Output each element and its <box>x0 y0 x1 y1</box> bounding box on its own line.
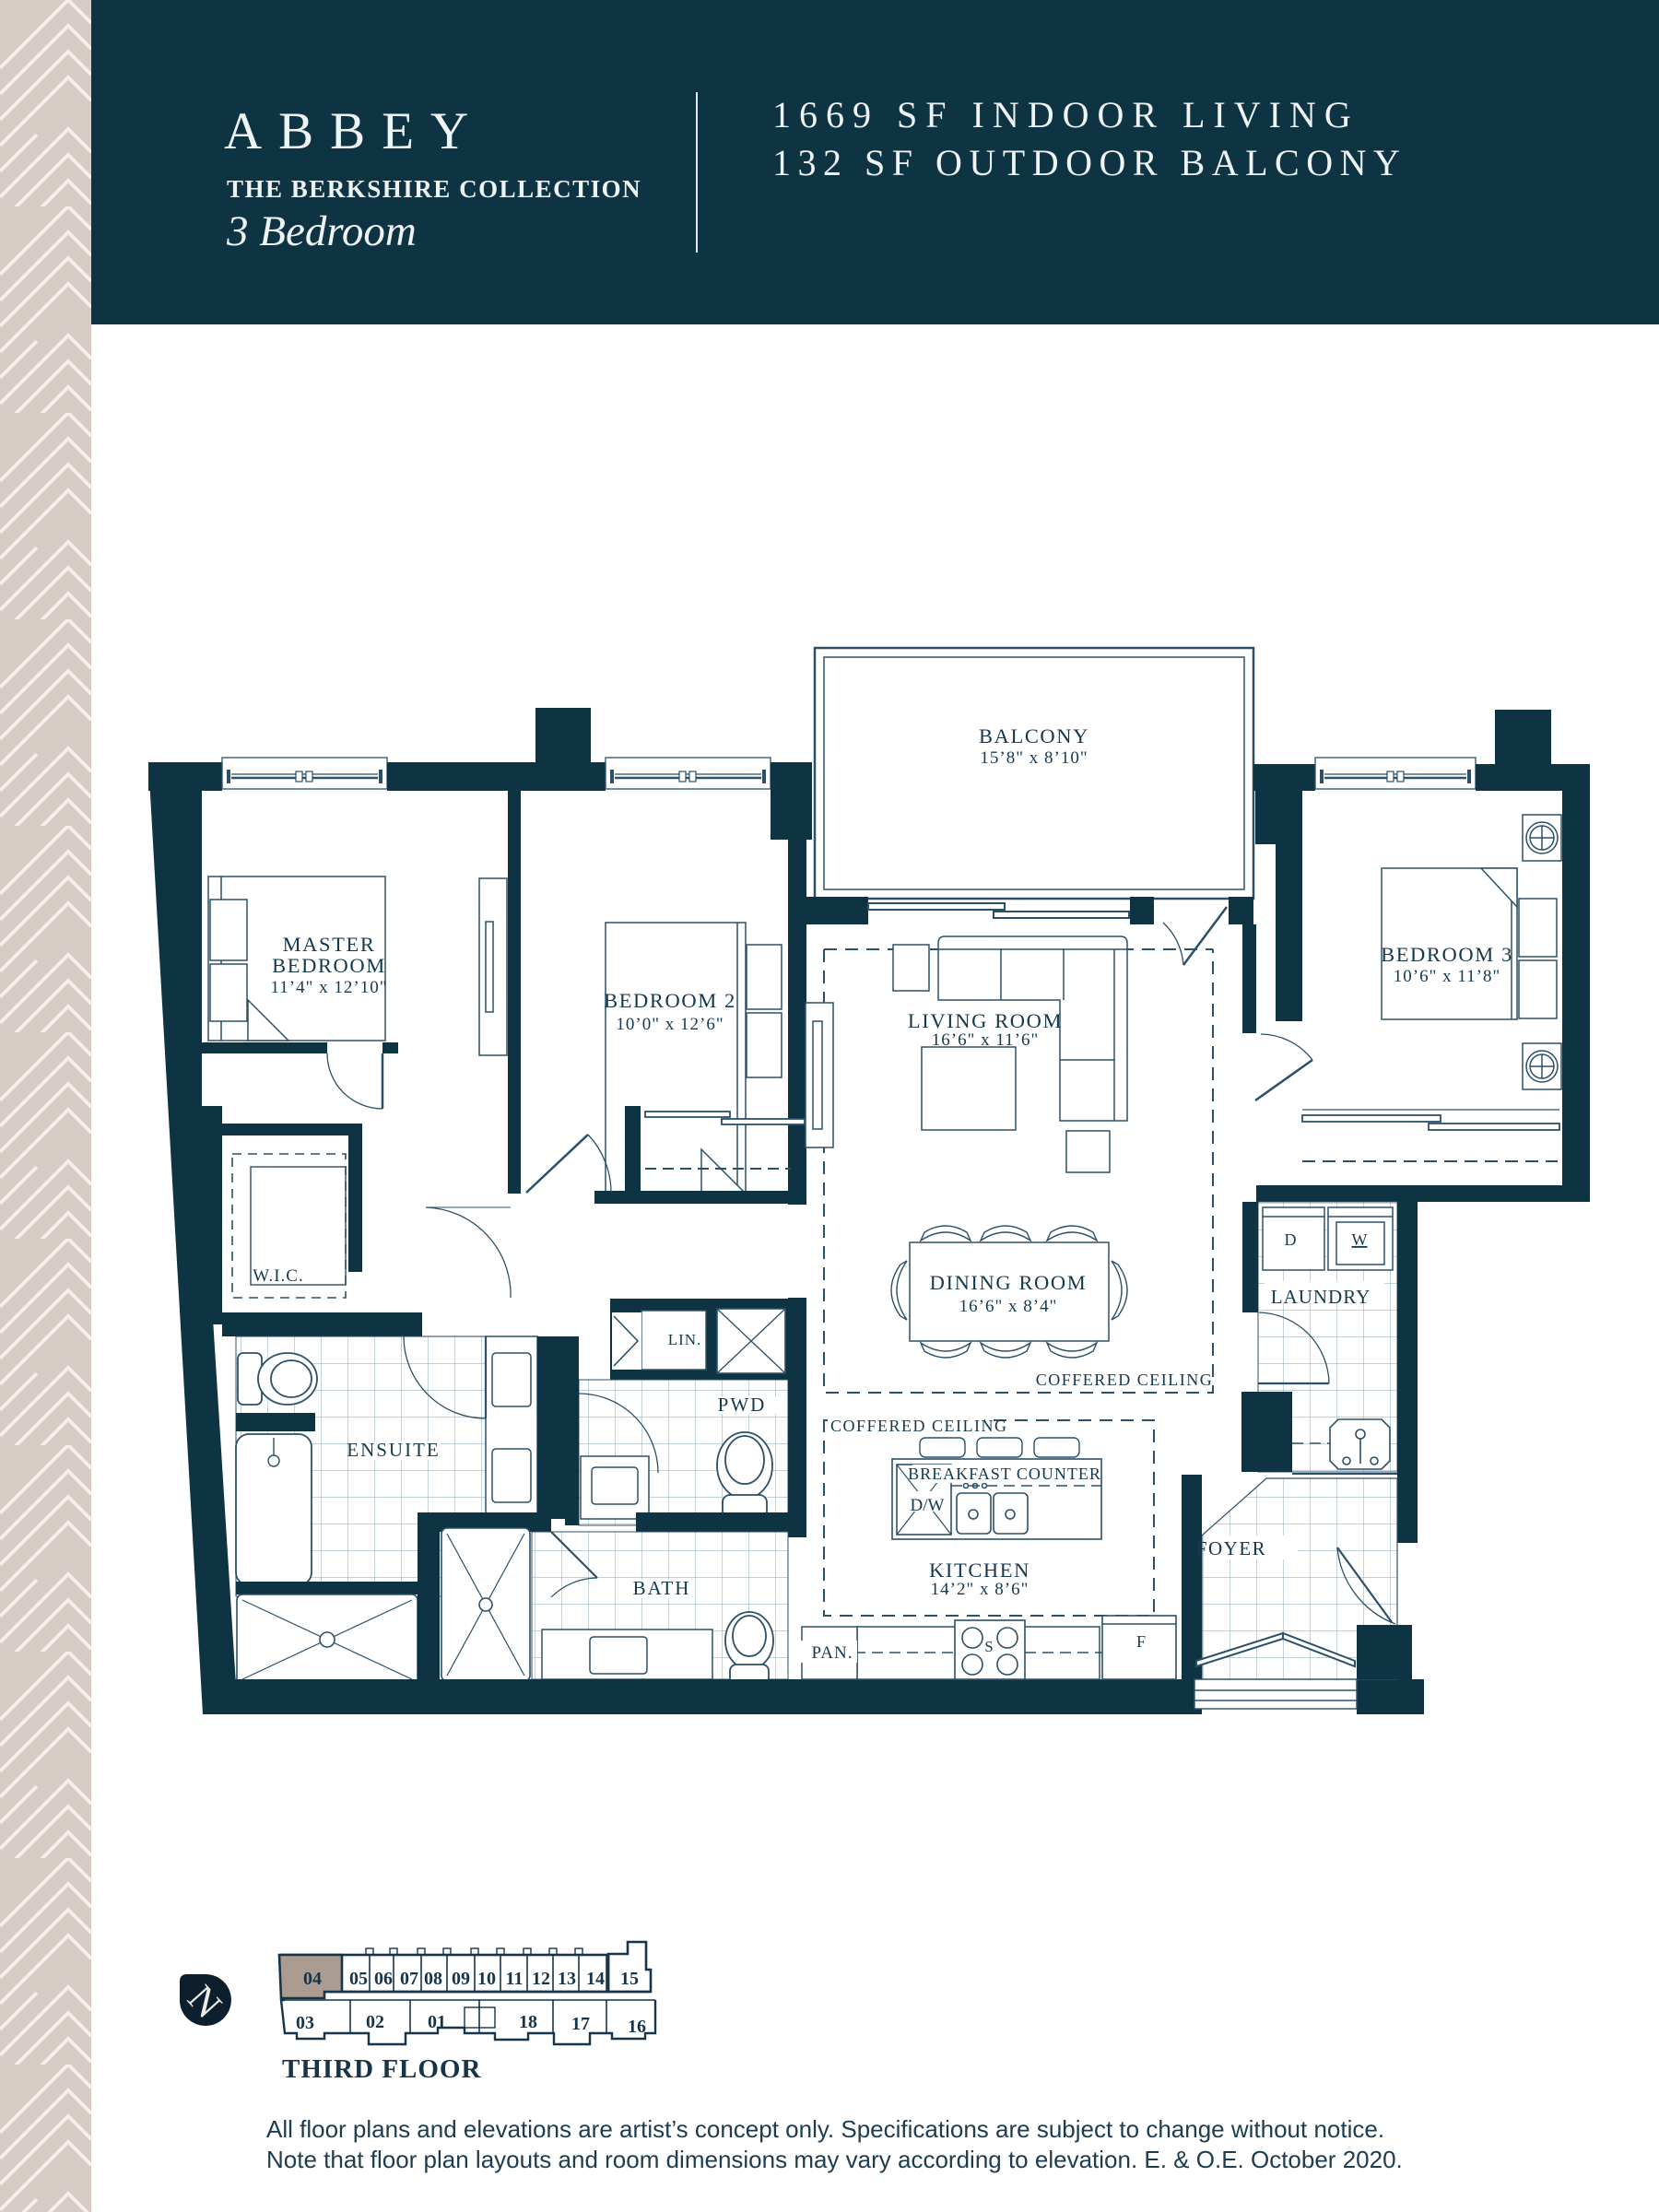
svg-text:18: 18 <box>519 2012 537 2032</box>
svg-text:10: 10 <box>477 1969 496 1989</box>
svg-text:D/W: D/W <box>911 1496 945 1515</box>
svg-text:W.I.C.: W.I.C. <box>253 1266 303 1286</box>
svg-text:03: 03 <box>296 2013 314 2033</box>
svg-text:W: W <box>1352 1230 1368 1249</box>
svg-text:LAUNDRY: LAUNDRY <box>1271 1286 1371 1308</box>
svg-text:KITCHEN: KITCHEN <box>929 1559 1030 1582</box>
svg-text:3 Bedroom: 3 Bedroom <box>226 207 417 255</box>
svg-text:05: 05 <box>349 1969 368 1989</box>
svg-text:BEDROOM: BEDROOM <box>272 954 386 977</box>
svg-text:13: 13 <box>558 1969 576 1989</box>
svg-text:04: 04 <box>303 1969 322 1989</box>
svg-text:1669 SF INDOOR LIVING: 1669 SF INDOOR LIVING <box>772 94 1359 135</box>
svg-text:All floor plans and elevations: All floor plans and elevations are artis… <box>266 2115 1384 2143</box>
svg-text:BALCONY: BALCONY <box>979 724 1089 747</box>
svg-text:S: S <box>984 1638 993 1655</box>
svg-text:10’6" x 11’8": 10’6" x 11’8" <box>1394 967 1500 986</box>
svg-text:LIN.: LIN. <box>668 1331 702 1348</box>
svg-text:11’4" x 12’10": 11’4" x 12’10" <box>271 978 388 997</box>
svg-text:16’6" x 11’6": 16’6" x 11’6" <box>932 1030 1039 1050</box>
svg-text:06: 06 <box>374 1969 393 1989</box>
svg-text:D: D <box>1285 1230 1297 1249</box>
svg-text:BEDROOM 2: BEDROOM 2 <box>604 989 736 1012</box>
svg-text:PAN.: PAN. <box>811 1643 853 1663</box>
svg-text:12: 12 <box>532 1969 550 1989</box>
svg-text:COFFERED CEILING: COFFERED CEILING <box>1036 1371 1214 1389</box>
svg-text:DINING ROOM: DINING ROOM <box>930 1271 1088 1294</box>
svg-text:16: 16 <box>628 2017 646 2037</box>
svg-text:02: 02 <box>366 2012 384 2032</box>
svg-text:ABBEY: ABBEY <box>224 102 485 160</box>
svg-text:LIVING ROOM: LIVING ROOM <box>908 1009 1063 1032</box>
svg-text:COFFERED CEILING: COFFERED CEILING <box>830 1417 1008 1435</box>
svg-text:14: 14 <box>586 1969 605 1989</box>
svg-text:F: F <box>1136 1632 1146 1651</box>
svg-text:BEDROOM 3: BEDROOM 3 <box>1381 943 1513 966</box>
svg-text:15: 15 <box>620 1969 639 1989</box>
svg-text:14’2" x 8’6": 14’2" x 8’6" <box>931 1580 1030 1599</box>
svg-text:11: 11 <box>506 1969 524 1989</box>
svg-text:ENSUITE: ENSUITE <box>347 1439 441 1461</box>
svg-text:THIRD FLOOR: THIRD FLOOR <box>282 2054 481 2084</box>
svg-text:PWD: PWD <box>718 1394 767 1416</box>
svg-text:07: 07 <box>400 1969 418 1989</box>
svg-text:08: 08 <box>424 1969 442 1989</box>
svg-text:MASTER: MASTER <box>283 933 376 956</box>
svg-text:17: 17 <box>571 2014 590 2034</box>
svg-text:BREAKFAST COUNTER: BREAKFAST COUNTER <box>908 1465 1101 1483</box>
svg-text:01: 01 <box>428 2012 446 2032</box>
svg-text:132 SF OUTDOOR BALCONY: 132 SF OUTDOOR BALCONY <box>772 142 1406 183</box>
svg-text:15’8" x 8’10": 15’8" x 8’10" <box>980 748 1088 768</box>
svg-text:16’6" x 8’4": 16’6" x 8’4" <box>959 1297 1058 1316</box>
svg-text:BATH: BATH <box>633 1577 691 1599</box>
svg-text:FOYER: FOYER <box>1196 1537 1266 1559</box>
svg-text:Note that floor plan layouts a: Note that floor plan layouts and room di… <box>266 2146 1403 2173</box>
svg-text:09: 09 <box>452 1969 470 1989</box>
svg-text:THE BERKSHIRE COLLECTION: THE BERKSHIRE COLLECTION <box>227 175 641 203</box>
svg-text:10’0" x 12’6": 10’0" x 12’6" <box>616 1015 724 1034</box>
